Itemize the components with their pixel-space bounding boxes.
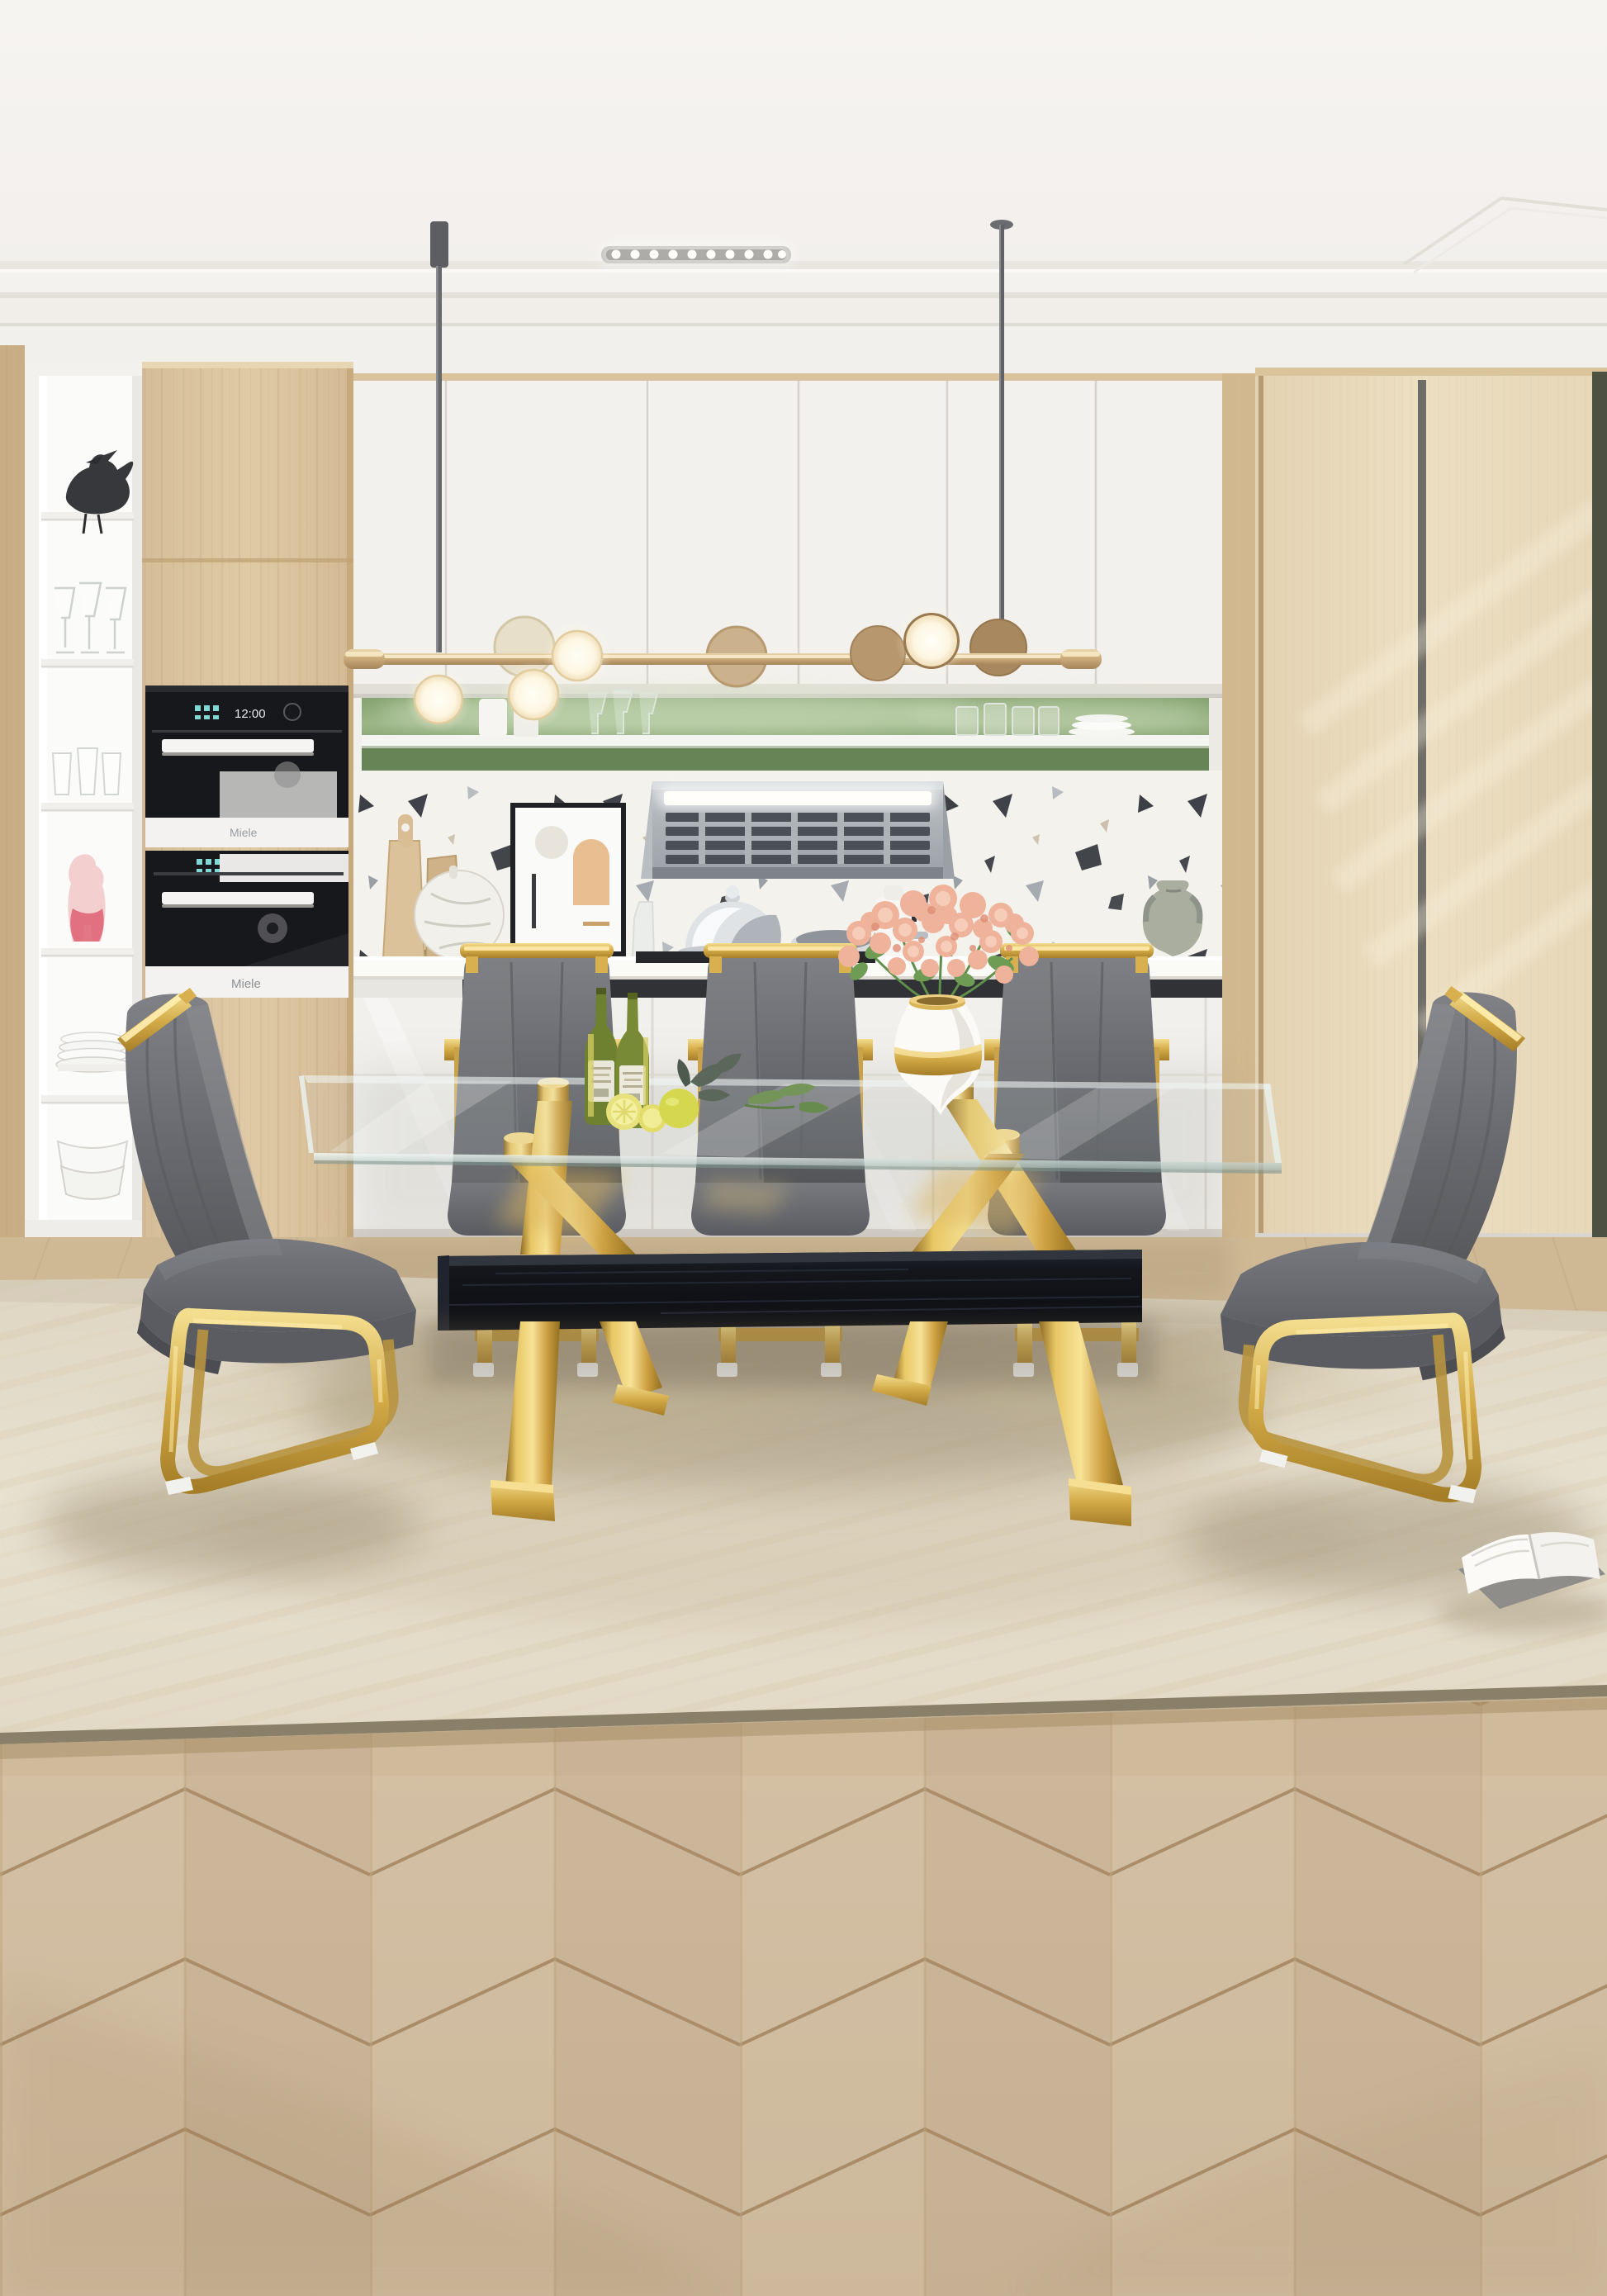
svg-text:Miele: Miele xyxy=(231,977,261,991)
svg-text:12:00: 12:00 xyxy=(235,707,266,721)
svg-text:Miele: Miele xyxy=(230,826,258,839)
